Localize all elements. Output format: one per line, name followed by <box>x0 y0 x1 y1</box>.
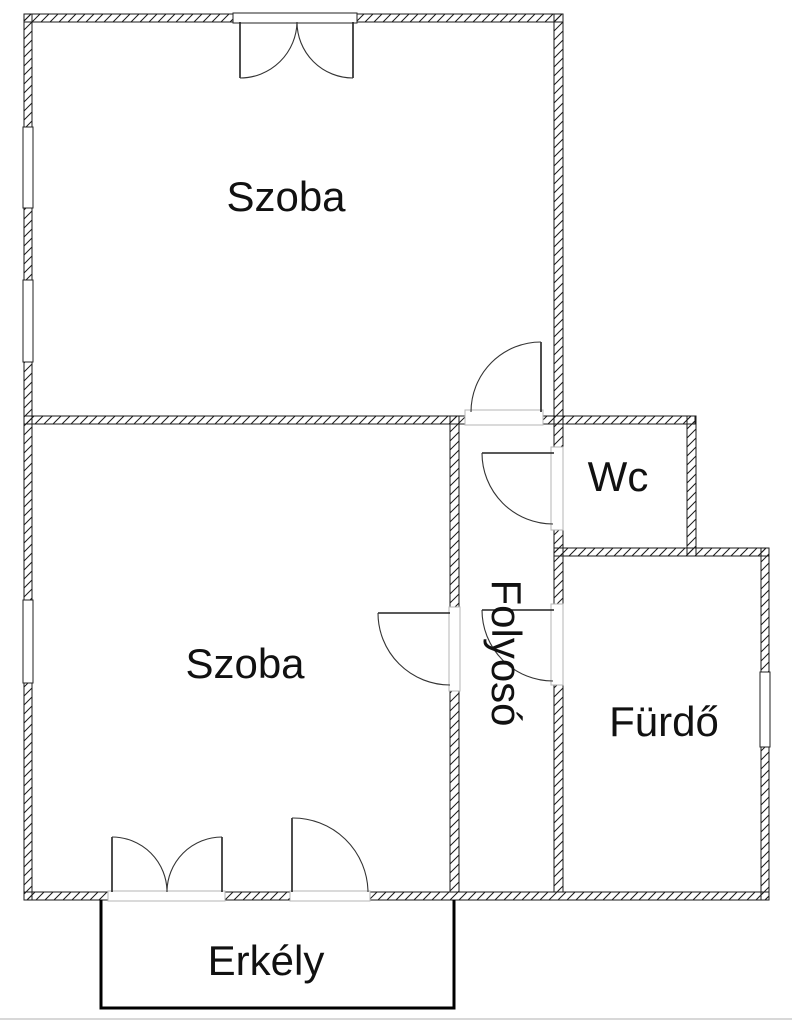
room-label-furdo: Fürdő <box>609 701 719 743</box>
wall-segment <box>24 14 32 127</box>
wall-segment <box>24 683 32 900</box>
window-left-upper-2 <box>23 280 33 362</box>
door-folyoso-szoba <box>378 613 450 685</box>
room-label-szoba-top: Szoba <box>226 176 345 218</box>
wall-segment <box>554 530 563 604</box>
room-label-wc: Wc <box>588 456 649 498</box>
wall-segment <box>761 747 769 900</box>
wall-segment <box>24 892 108 900</box>
wall-segment <box>554 685 563 892</box>
window-left-lower <box>23 600 33 683</box>
floor-plan-page: Szoba Szoba Wc Folyosó Fürdő Erkély <box>0 0 792 1024</box>
single-balcony-door <box>292 818 368 892</box>
floor-plan-canvas <box>0 0 792 1024</box>
wall-segment <box>761 548 769 672</box>
wall-segment <box>370 892 769 900</box>
room-label-szoba-bottom: Szoba <box>185 643 304 685</box>
door-opening <box>290 891 370 901</box>
window-left-upper-1 <box>23 127 33 208</box>
wall-segment <box>554 548 769 556</box>
door-opening <box>465 410 543 425</box>
window-top-double <box>233 13 357 23</box>
wall-segment <box>24 362 32 600</box>
double-window-top <box>240 22 353 78</box>
double-balcony-door <box>112 837 222 892</box>
door-top-szoba-folyoso <box>471 342 541 412</box>
door-opening <box>449 607 460 691</box>
door-opening <box>108 891 225 901</box>
wall-segment <box>24 208 32 280</box>
wall-segment <box>24 416 465 424</box>
doors <box>112 22 554 892</box>
wall-segment <box>450 691 459 892</box>
wall-segment <box>357 14 563 22</box>
room-label-folyoso: Folyosó <box>485 579 527 726</box>
door-opening <box>551 447 563 530</box>
wall-segment <box>24 14 233 22</box>
wall-segment <box>450 416 459 607</box>
wall-segment <box>543 416 695 424</box>
door-opening <box>551 604 563 685</box>
windows <box>23 13 770 747</box>
window-right-furdo <box>760 672 770 747</box>
wall-segment <box>554 14 563 447</box>
walls <box>24 14 769 900</box>
wall-segment <box>687 416 696 556</box>
room-label-erkely: Erkély <box>208 940 325 982</box>
door-folyoso-wc <box>482 453 554 524</box>
wall-segment <box>225 892 290 900</box>
